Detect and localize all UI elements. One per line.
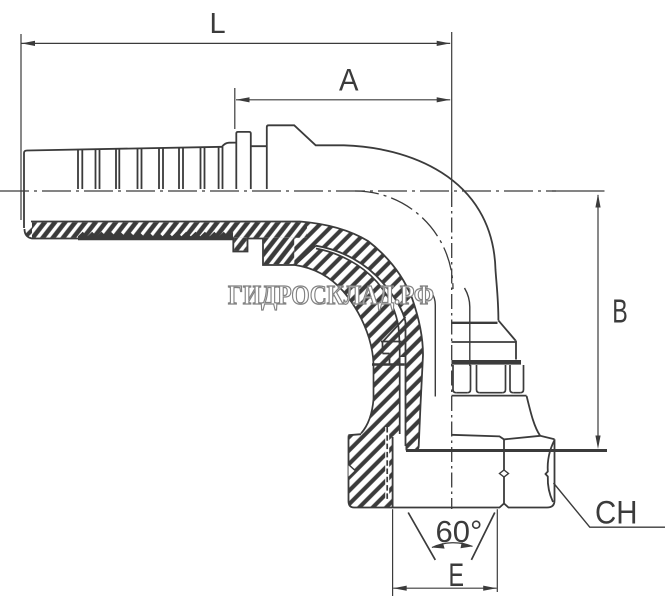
svg-text:ГИДРОСКЛАД.РФ: ГИДРОСКЛАД.РФ xyxy=(228,280,434,310)
svg-text:60°: 60° xyxy=(436,514,483,549)
svg-text:E: E xyxy=(449,557,465,593)
svg-text:B: B xyxy=(612,293,628,330)
svg-text:CH: CH xyxy=(595,495,638,531)
svg-text:L: L xyxy=(210,8,226,40)
svg-text:A: A xyxy=(339,62,359,98)
